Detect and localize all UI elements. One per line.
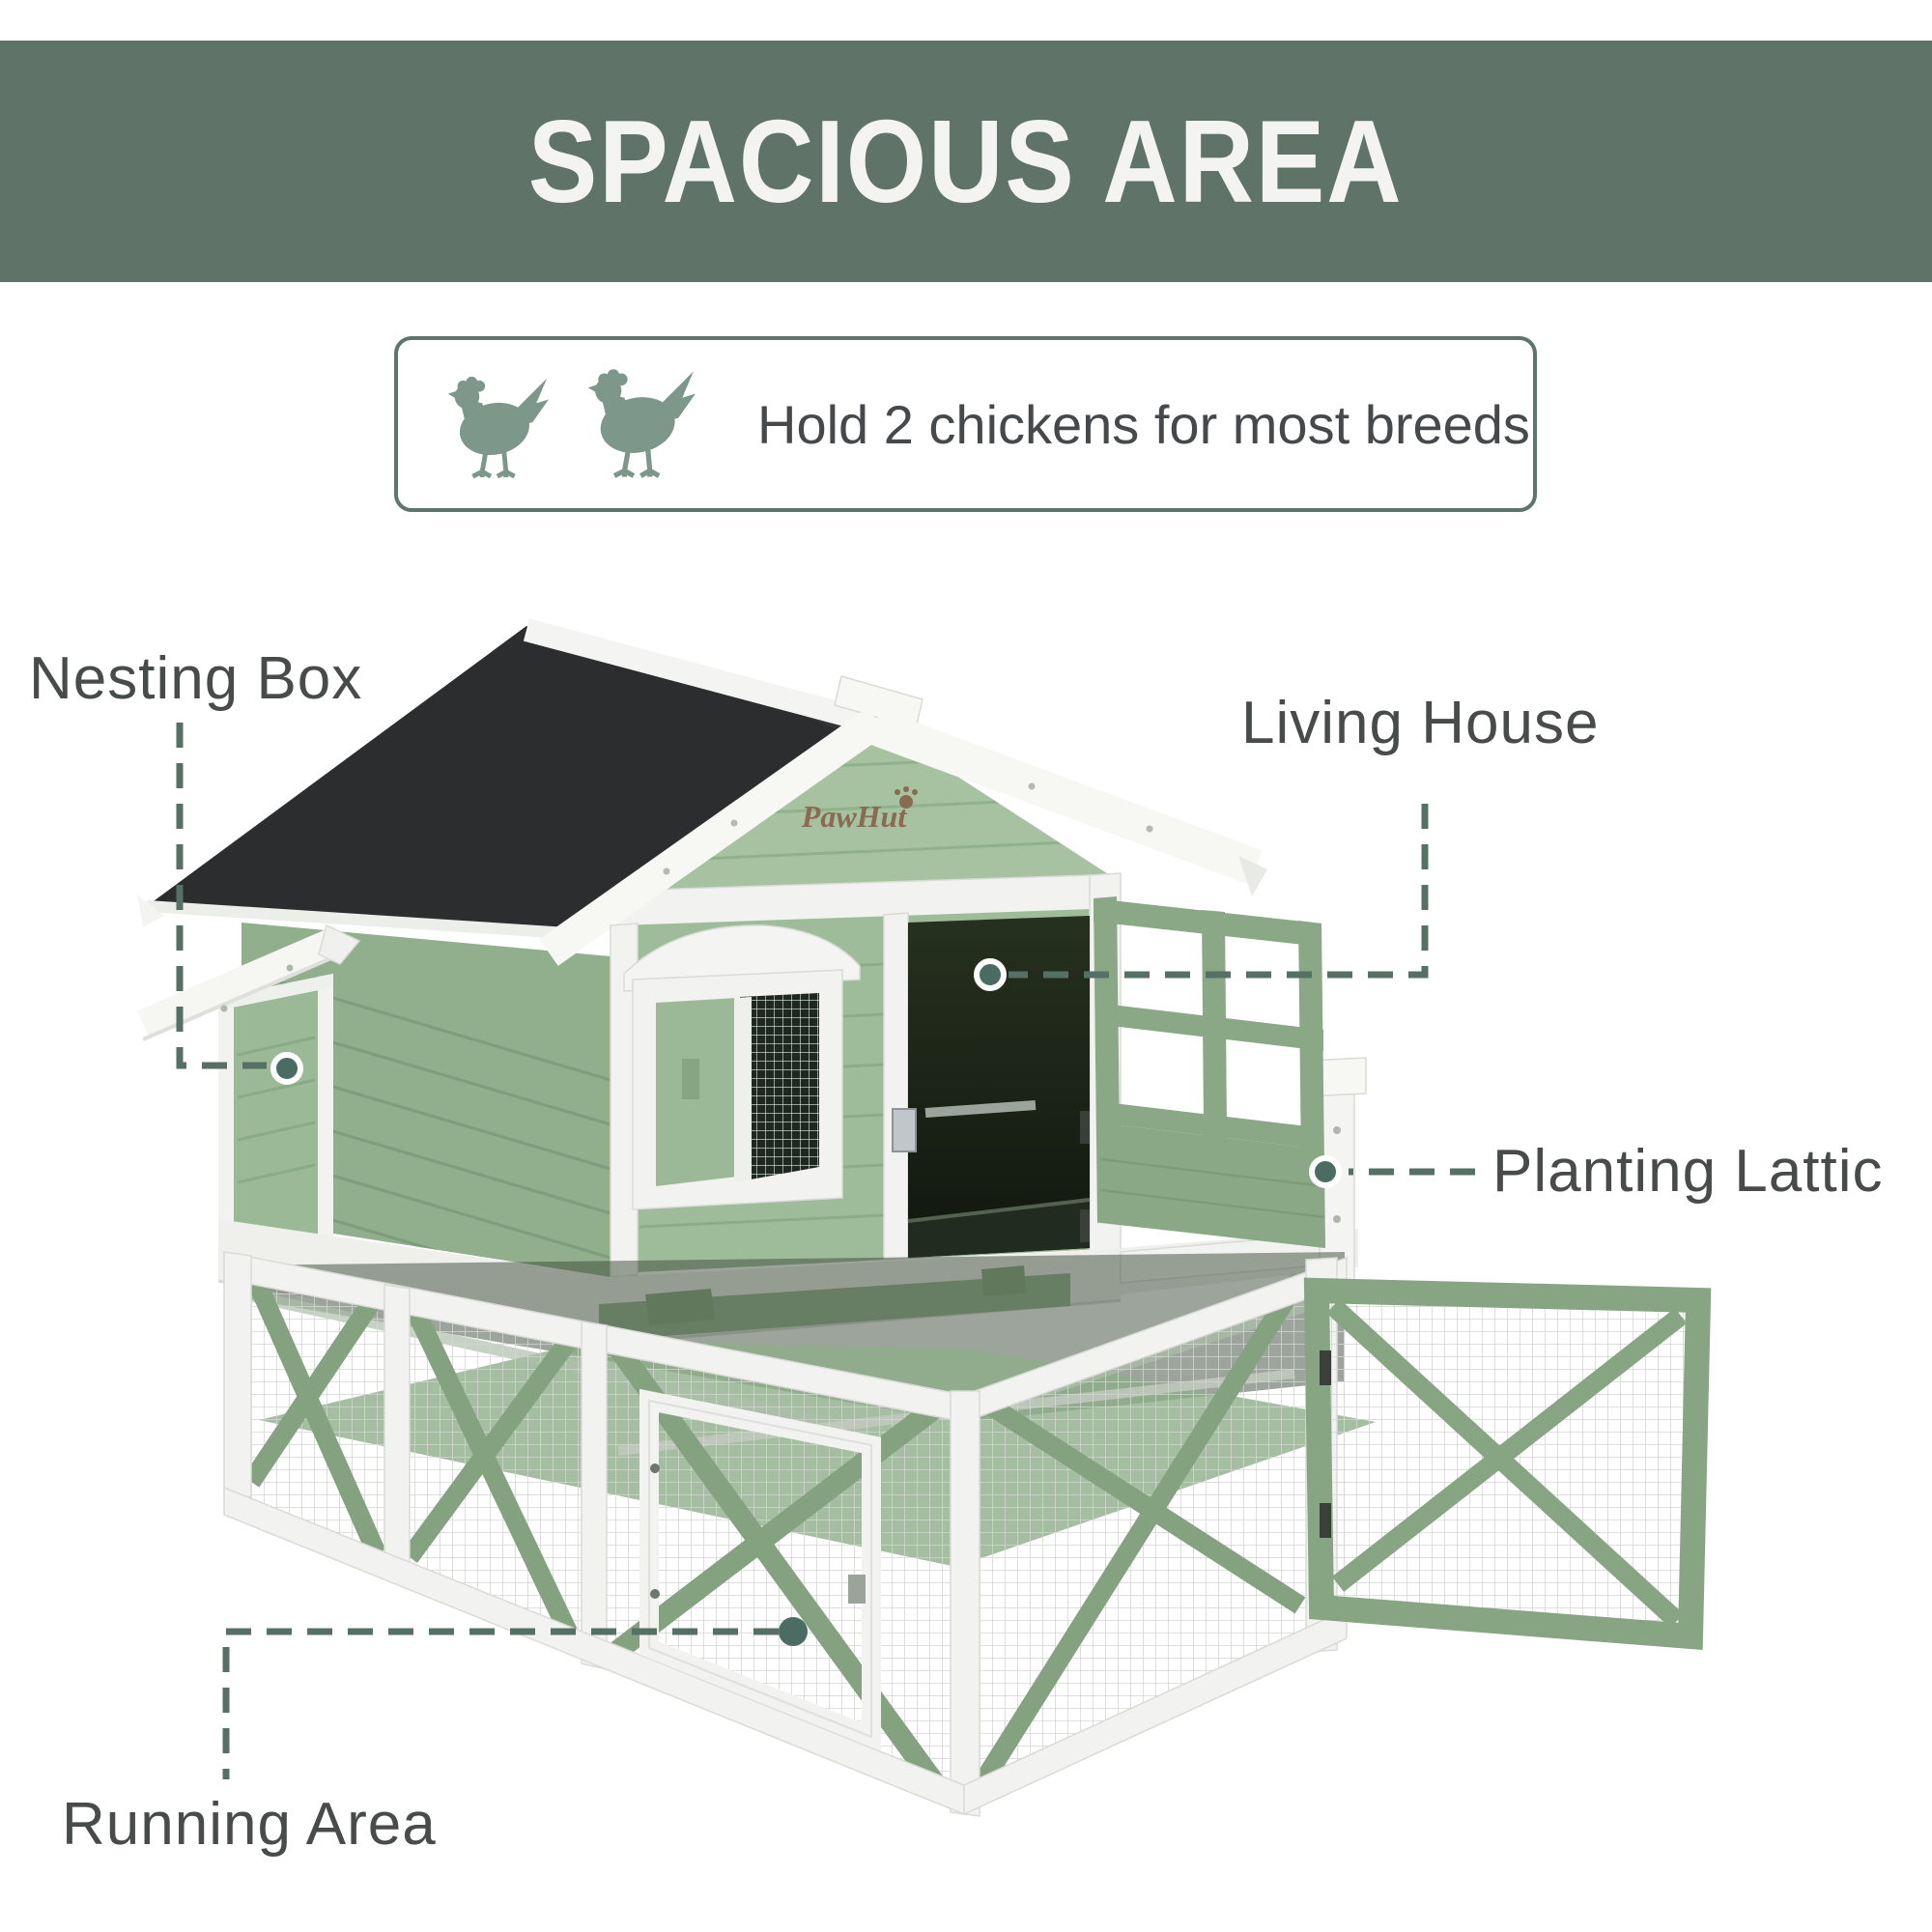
svg-text:PawHut: PawHut: [801, 799, 908, 834]
running-area-dot: [779, 1617, 808, 1646]
living-house-label: Living House: [1241, 690, 1599, 757]
nesting-box-dot: [273, 1055, 300, 1082]
product-infographic: SPACIOUS AREA: [0, 0, 1932, 1932]
coop-illustration: PawHut: [0, 0, 1932, 1932]
living-house-dot: [977, 961, 1004, 988]
planting-lattice-label: Planting Lattic: [1492, 1138, 1883, 1206]
planting-lattice-dot: [1312, 1158, 1339, 1185]
running-area-label: Running Area: [62, 1791, 437, 1859]
nesting-box-label: Nesting Box: [29, 645, 362, 713]
lattice-door: [1094, 896, 1325, 1248]
run-gate: [1317, 1291, 1698, 1636]
window: [624, 925, 860, 1209]
